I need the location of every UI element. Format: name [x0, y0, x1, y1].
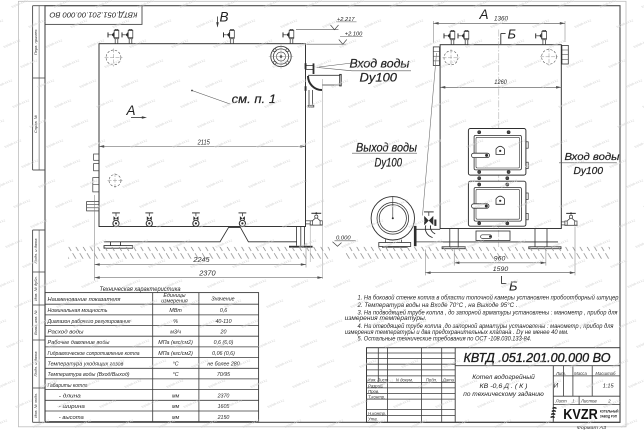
svg-text:2370: 2370 [217, 394, 230, 400]
svg-text:teplab-kv.kz: teplab-kv.kz [358, 258, 376, 269]
svg-text:teplab-kv.kz: teplab-kv.kz [72, 218, 90, 229]
svg-text:teplab-kv.kz: teplab-kv.kz [82, 378, 100, 389]
svg-text:- высота: - высота [59, 415, 84, 421]
svg-text:Лит.: Лит. [555, 371, 566, 376]
svg-text:Масштаб: Масштаб [595, 371, 616, 376]
svg-text:teplab-kv.kz: teplab-kv.kz [349, 198, 367, 209]
svg-text:teplab-kv.kz: teplab-kv.kz [324, 218, 342, 229]
svg-text:teplab-kv.kz: teplab-kv.kz [141, 398, 159, 409]
svg-text:teplab-kv.kz: teplab-kv.kz [633, 38, 644, 49]
svg-text:teplab-kv.kz: teplab-kv.kz [536, 418, 554, 429]
svg-text:teplab-kv.kz: teplab-kv.kz [610, 258, 628, 269]
svg-text:0,06 (0,6): 0,06 (0,6) [212, 351, 235, 357]
svg-text:1:15: 1:15 [603, 383, 615, 389]
svg-text:40-110: 40-110 [215, 319, 231, 325]
svg-text:teplab-kv.kz: teplab-kv.kz [0, 218, 6, 229]
svg-text:teplab-kv.kz: teplab-kv.kz [208, 378, 226, 389]
svg-text:teplab-kv.kz: teplab-kv.kz [600, 98, 618, 109]
svg-text:teplab-kv.kz: teplab-kv.kz [241, 318, 259, 329]
svg-text:teplab-kv.kz: teplab-kv.kz [284, 418, 302, 429]
svg-text:teplab-kv.kz: teplab-kv.kz [477, 398, 495, 409]
svg-text:мм: мм [172, 394, 180, 400]
svg-text:teplab-kv.kz: teplab-kv.kz [626, 178, 644, 189]
svg-text:teplab-kv.kz: teplab-kv.kz [592, 138, 610, 149]
svg-text:teplab-kv.kz: teplab-kv.kz [306, 98, 324, 109]
svg-text:teplab-kv.kz: teplab-kv.kz [81, 278, 99, 289]
svg-text:teplab-kv.kz: teplab-kv.kz [423, 38, 441, 49]
svg-text:teplab-kv.kz: teplab-kv.kz [339, 38, 357, 49]
svg-text:teplab-kv.kz: teplab-kv.kz [64, 258, 82, 269]
svg-text:- длина: - длина [59, 394, 81, 400]
svg-text:Dy100: Dy100 [375, 157, 403, 169]
svg-text:teplab-kv.kz: teplab-kv.kz [274, 258, 292, 269]
svg-text:+2.100: +2.100 [345, 31, 363, 37]
svg-text:teplab-kv.kz: teplab-kv.kz [45, 38, 63, 49]
svg-text:teplab-kv.kz: teplab-kv.kz [308, 298, 326, 309]
svg-text:Листов: Листов [580, 399, 597, 404]
svg-text:Б: Б [508, 27, 517, 42]
svg-text:teplab-kv.kz: teplab-kv.kz [366, 218, 384, 229]
svg-text:teplab-kv.kz: teplab-kv.kz [225, 398, 243, 409]
svg-text:teplab-kv.kz: teplab-kv.kz [591, 38, 609, 49]
svg-text:teplab-kv.kz: teplab-kv.kz [357, 158, 375, 169]
svg-text:Дата: Дата [442, 377, 455, 382]
svg-text:teplab-kv.kz: teplab-kv.kz [568, 258, 586, 269]
svg-text:teplab-kv.kz: teplab-kv.kz [32, 418, 50, 429]
svg-text:измерения температуры.: измерения температуры. [345, 315, 427, 322]
svg-text:teplab-kv.kz: teplab-kv.kz [158, 418, 176, 429]
svg-text:Перв. примен.: Перв. примен. [33, 29, 38, 56]
svg-text:Температура воды (Вход/Выход): Температура воды (Вход/Выход) [48, 372, 130, 378]
svg-text:teplab-kv.kz: teplab-kv.kz [4, 138, 22, 149]
svg-text:teplab-kv.kz: teplab-kv.kz [14, 298, 32, 309]
svg-text:teplab-kv.kz: teplab-kv.kz [375, 278, 393, 289]
svg-text:teplab-kv.kz: teplab-kv.kz [249, 278, 267, 289]
svg-text:teplab-kv.kz: teplab-kv.kz [574, 18, 592, 29]
svg-text:teplab-kv.kz: teplab-kv.kz [390, 98, 408, 109]
svg-text:teplab-kv.kz: teplab-kv.kz [585, 278, 603, 289]
svg-text:teplab-kv.kz: teplab-kv.kz [576, 218, 594, 229]
svg-text:teplab-kv.kz: teplab-kv.kz [620, 418, 638, 429]
svg-text:Котел водогрейный: Котел водогрейный [472, 373, 535, 381]
svg-text:teplab-kv.kz: teplab-kv.kz [0, 278, 15, 289]
svg-text:teplab-kv.kz: teplab-kv.kz [424, 138, 442, 149]
svg-text:teplab-kv.kz: teplab-kv.kz [309, 398, 327, 409]
svg-text:teplab-kv.kz: teplab-kv.kz [79, 78, 97, 89]
svg-text:teplab-kv.kz: teplab-kv.kz [0, 318, 7, 329]
svg-text:teplab-kv.kz: teplab-kv.kz [608, 58, 626, 69]
svg-text:teplab-kv.kz: teplab-kv.kz [0, 18, 4, 29]
svg-text:teplab-kv.kz: teplab-kv.kz [415, 78, 433, 89]
svg-text:А: А [126, 103, 136, 118]
svg-text:teplab-kv.kz: teplab-kv.kz [149, 358, 167, 369]
svg-text:Пров.: Пров. [368, 389, 379, 394]
svg-text:teplab-kv.kz: teplab-kv.kz [46, 138, 64, 149]
svg-text:2150: 2150 [217, 415, 230, 421]
svg-text:70/95: 70/95 [217, 372, 230, 378]
svg-text:teplab-kv.kz: teplab-kv.kz [39, 278, 57, 289]
svg-text:teplab-kv.kz: teplab-kv.kz [315, 158, 333, 169]
svg-text:20: 20 [220, 330, 227, 336]
svg-text:teplab-kv.kz: teplab-kv.kz [5, 238, 23, 249]
svg-text:teplab-kv.kz: teplab-kv.kz [601, 198, 619, 209]
svg-text:teplab-kv.kz: teplab-kv.kz [116, 418, 134, 429]
svg-text:teplab-kv.kz: teplab-kv.kz [332, 178, 350, 189]
svg-text:teplab-kv.kz: teplab-kv.kz [636, 338, 644, 349]
svg-text:teplab-kv.kz: teplab-kv.kz [12, 98, 30, 109]
svg-text:teplab-kv.kz: teplab-kv.kz [11, 0, 29, 9]
svg-text:teplab-kv.kz: teplab-kv.kz [417, 278, 435, 289]
svg-text:teplab-kv.kz: teplab-kv.kz [452, 418, 470, 429]
svg-text:teplab-kv.kz: teplab-kv.kz [616, 18, 634, 29]
svg-text:Инв. № подл.: Инв. № подл. [33, 393, 38, 418]
svg-text:teplab-kv.kz: teplab-kv.kz [38, 178, 56, 189]
svg-text:Н.контр.: Н.контр. [368, 411, 386, 416]
svg-text:teplab-kv.kz: teplab-kv.kz [584, 178, 602, 189]
svg-text:teplab-kv.kz: teplab-kv.kz [634, 138, 644, 149]
svg-text:teplab-kv.kz: teplab-kv.kz [342, 338, 360, 349]
svg-text:teplab-kv.kz: teplab-kv.kz [348, 98, 366, 109]
svg-text:teplab-kv.kz: teplab-kv.kz [21, 158, 39, 169]
svg-text:teplab-kv.kz: teplab-kv.kz [0, 178, 14, 189]
svg-text:teplab-kv.kz: teplab-kv.kz [196, 18, 214, 29]
svg-text:teplab-kv.kz: teplab-kv.kz [519, 398, 537, 409]
svg-text:teplab-kv.kz: teplab-kv.kz [13, 198, 31, 209]
svg-text:teplab-kv.kz: teplab-kv.kz [267, 398, 285, 409]
svg-text:teplab-kv.kz: teplab-kv.kz [23, 358, 41, 369]
svg-text:teplab-kv.kz: teplab-kv.kz [619, 318, 637, 329]
svg-text:teplab-kv.kz: teplab-kv.kz [291, 278, 309, 289]
svg-text:teplab-kv.kz: teplab-kv.kz [625, 78, 643, 89]
svg-text:teplab-kv.kz: teplab-kv.kz [71, 118, 89, 129]
svg-text:В: В [220, 10, 229, 25]
svg-text:N докум.: N докум. [396, 377, 413, 382]
svg-text:teplab-kv.kz: teplab-kv.kz [166, 378, 184, 389]
svg-text:teplab-kv.kz: teplab-kv.kz [0, 418, 8, 429]
svg-text:teplab-kv.kz: teplab-kv.kz [6, 338, 24, 349]
svg-text:Т.контр.: Т.контр. [368, 395, 385, 400]
svg-text:teplab-kv.kz: teplab-kv.kz [238, 18, 256, 29]
svg-text:teplab-kv.kz: teplab-kv.kz [586, 378, 604, 389]
svg-text:teplab-kv.kz: teplab-kv.kz [183, 398, 201, 409]
svg-text:teplab-kv.kz: teplab-kv.kz [322, 18, 340, 29]
svg-text:teplab-kv.kz: teplab-kv.kz [435, 398, 453, 409]
svg-text:teplab-kv.kz: teplab-kv.kz [459, 278, 477, 289]
svg-text:teplab-kv.kz: teplab-kv.kz [325, 318, 343, 329]
svg-text:teplab-kv.kz: teplab-kv.kz [400, 258, 418, 269]
svg-text:teplab-kv.kz: teplab-kv.kz [628, 378, 644, 389]
svg-text:teplab-kv.kz: teplab-kv.kz [200, 418, 218, 429]
svg-text:teplab-kv.kz: teplab-kv.kz [124, 378, 142, 389]
svg-text:teplab-kv.kz: teplab-kv.kz [233, 358, 251, 369]
svg-text:teplab-kv.kz: teplab-kv.kz [627, 278, 644, 289]
svg-text:КВТД.051.201.00.000 ВО: КВТД.051.201.00.000 ВО [49, 10, 137, 19]
svg-text:teplab-kv.kz: teplab-kv.kz [207, 278, 225, 289]
svg-text:5. Остальные технические треб: 5. Остальные технические требования по О… [358, 336, 532, 343]
svg-text:teplab-kv.kz: teplab-kv.kz [408, 218, 426, 229]
svg-text:teplab-kv.kz: teplab-kv.kz [28, 18, 46, 29]
svg-text:0,6: 0,6 [220, 308, 227, 314]
svg-text:teplab-kv.kz: teplab-kv.kz [393, 398, 411, 409]
svg-text:teplab-kv.kz: teplab-kv.kz [275, 358, 293, 369]
svg-text:teplab-kv.kz: teplab-kv.kz [0, 78, 13, 89]
svg-text:teplab-kv.kz: teplab-kv.kz [242, 418, 260, 429]
svg-text:МВт: МВт [169, 308, 182, 314]
svg-text:Масса: Масса [574, 371, 587, 376]
svg-text:teplab-kv.kz: teplab-kv.kz [47, 238, 65, 249]
svg-text:teplab-kv.kz: teplab-kv.kz [494, 418, 512, 429]
svg-text:teplab-kv.kz: teplab-kv.kz [391, 198, 409, 209]
svg-text:teplab-kv.kz: teplab-kv.kz [55, 198, 73, 209]
svg-text:teplab-kv.kz: teplab-kv.kz [314, 58, 332, 69]
svg-text:teplab-kv.kz: teplab-kv.kz [334, 378, 352, 389]
svg-text:teplab-kv.kz: teplab-kv.kz [54, 98, 72, 109]
svg-text:teplab-kv.kz: teplab-kv.kz [258, 338, 276, 349]
svg-text:teplab-kv.kz: teplab-kv.kz [199, 318, 217, 329]
svg-text:teplab-kv.kz: teplab-kv.kz [333, 278, 351, 289]
svg-text:teplab-kv.kz: teplab-kv.kz [618, 218, 636, 229]
svg-text:teplab-kv.kz: teplab-kv.kz [359, 358, 377, 369]
svg-text:Изм.: Изм. [367, 377, 376, 382]
svg-text:teplab-kv.kz: teplab-kv.kz [132, 338, 150, 349]
svg-text:teplab-kv.kz: teplab-kv.kz [543, 278, 561, 289]
svg-text:teplab-kv.kz: teplab-kv.kz [148, 258, 166, 269]
svg-text:teplab-kv.kz: teplab-kv.kz [15, 398, 33, 409]
svg-text:teplab-kv.kz: teplab-kv.kz [410, 418, 428, 429]
svg-text:°С: °С [173, 362, 179, 368]
svg-text:teplab-kv.kz: teplab-kv.kz [603, 398, 621, 409]
svg-text:Инв. № дубл.: Инв. № дубл. [33, 276, 38, 301]
svg-text:teplab-kv.kz: teplab-kv.kz [154, 18, 172, 29]
svg-text:teplab-kv.kz: teplab-kv.kz [364, 18, 382, 29]
svg-text:teplab-kv.kz: teplab-kv.kz [106, 258, 124, 269]
svg-text:м3/ч: м3/ч [170, 330, 181, 336]
svg-text:teplab-kv.kz: teplab-kv.kz [407, 118, 425, 129]
svg-text:°С: °С [173, 372, 179, 378]
svg-text:teplab-kv.kz: teplab-kv.kz [140, 298, 158, 309]
svg-text:teplab-kv.kz: teplab-kv.kz [575, 118, 593, 129]
svg-text:2115: 2115 [197, 140, 210, 147]
svg-text:по техническому заданию: по техническому заданию [463, 390, 544, 398]
svg-text:2370: 2370 [198, 268, 216, 277]
svg-text:teplab-kv.kz: teplab-kv.kz [0, 118, 5, 129]
svg-text:teplab-kv.kz: teplab-kv.kz [80, 178, 98, 189]
svg-text:teplab-kv.kz: teplab-kv.kz [300, 338, 318, 349]
svg-text:teplab-kv.kz: teplab-kv.kz [406, 18, 424, 29]
svg-text:teplab-kv.kz: teplab-kv.kz [62, 58, 80, 69]
svg-text:teplab-kv.kz: teplab-kv.kz [280, 18, 298, 29]
svg-text:teplab-kv.kz: teplab-kv.kz [381, 38, 399, 49]
svg-text:teplab-kv.kz: teplab-kv.kz [583, 78, 601, 89]
svg-text:teplab-kv.kz: teplab-kv.kz [443, 358, 461, 369]
svg-text:teplab-kv.kz: teplab-kv.kz [316, 258, 334, 269]
svg-text:Вход воды: Вход воды [565, 151, 620, 163]
svg-text:teplab-kv.kz: teplab-kv.kz [365, 118, 383, 129]
svg-text:teplab-kv.kz: teplab-kv.kz [326, 418, 344, 429]
svg-text:Гидравлическое сопротивление к: Гидравлическое сопротивление котла [48, 351, 140, 357]
svg-text:teplab-kv.kz: teplab-kv.kz [401, 358, 419, 369]
svg-text:Dy100: Dy100 [574, 165, 604, 177]
svg-text:teplab-kv.kz: teplab-kv.kz [37, 78, 55, 89]
svg-text:teplab-kv.kz: teplab-kv.kz [266, 298, 284, 309]
svg-text:teplab-kv.kz: teplab-kv.kz [323, 118, 341, 129]
svg-text:teplab-kv.kz: teplab-kv.kz [635, 238, 644, 249]
svg-text:мм: мм [172, 404, 180, 410]
svg-text:teplab-kv.kz: teplab-kv.kz [283, 318, 301, 329]
svg-text:teplab-kv.kz: teplab-kv.kz [292, 378, 310, 389]
svg-text:Расход воды: Расход воды [48, 330, 84, 336]
svg-text:ЗАВОД РЭП: ЗАВОД РЭП [600, 413, 617, 418]
svg-text:1590: 1590 [493, 266, 509, 273]
svg-text:teplab-kv.kz: teplab-kv.kz [20, 58, 38, 69]
svg-text:teplab-kv.kz: teplab-kv.kz [317, 358, 335, 369]
svg-text:teplab-kv.kz: teplab-kv.kz [460, 378, 478, 389]
svg-text:А: А [479, 7, 489, 22]
svg-text:teplab-kv.kz: teplab-kv.kz [63, 158, 81, 169]
svg-text:teplab-kv.kz: teplab-kv.kz [99, 398, 117, 409]
svg-text:teplab-kv.kz: teplab-kv.kz [374, 178, 392, 189]
svg-text:teplab-kv.kz: teplab-kv.kz [0, 378, 16, 389]
svg-text:МПа (кгс/см2): МПа (кгс/см2) [158, 351, 193, 357]
svg-text:teplab-kv.kz: teplab-kv.kz [232, 258, 250, 269]
